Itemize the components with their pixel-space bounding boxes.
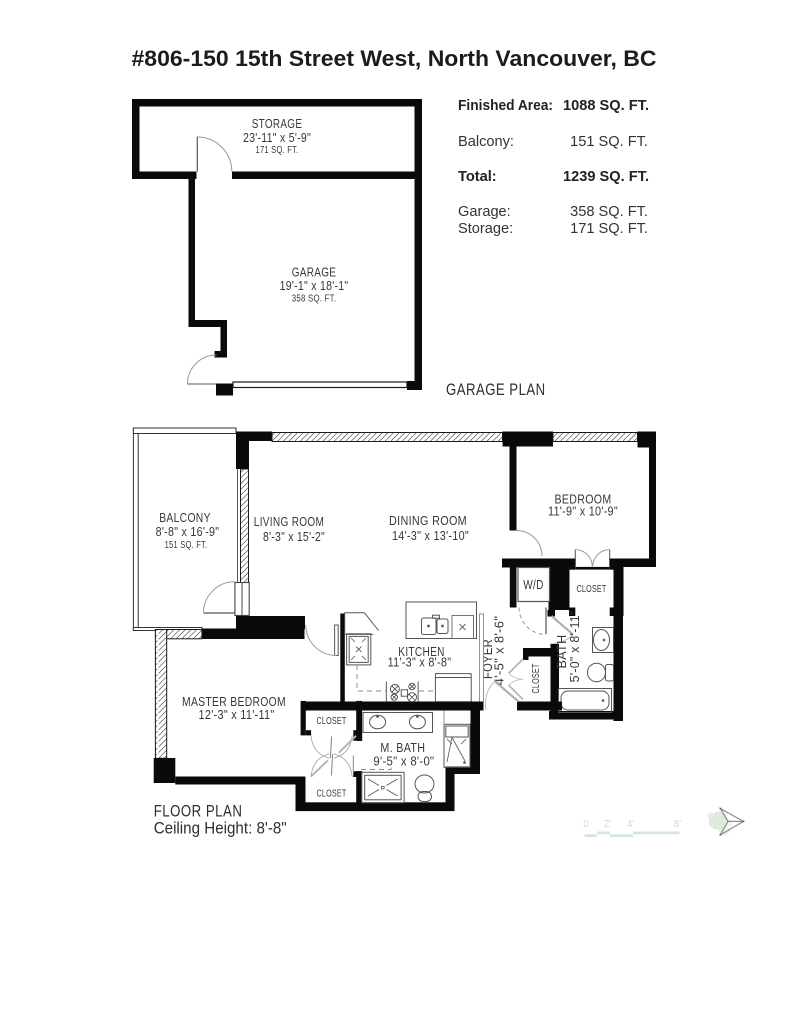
svg-text:2': 2' — [604, 819, 612, 830]
svg-text:9'-5" x 8'-0": 9'-5" x 8'-0" — [373, 755, 434, 769]
svg-text:8'-8" x 16'-9": 8'-8" x 16'-9" — [156, 525, 220, 539]
svg-text:GARAGE PLAN: GARAGE PLAN — [446, 381, 546, 399]
svg-text:GARAGE: GARAGE — [292, 265, 337, 280]
svg-text:#806-150 15th Street West, Nor: #806-150 15th Street West, North Vancouv… — [132, 46, 657, 71]
svg-text:Garage:: Garage: — [458, 204, 511, 220]
svg-text:8'-3" x 15'-2": 8'-3" x 15'-2" — [263, 530, 325, 544]
svg-text:CLOSET: CLOSET — [531, 664, 542, 694]
svg-text:358 SQ. FT.: 358 SQ. FT. — [570, 204, 648, 220]
svg-text:CLOSET: CLOSET — [317, 789, 347, 800]
svg-text:Total:: Total: — [458, 169, 497, 185]
svg-text:BATH: BATH — [554, 635, 569, 669]
svg-text:171 SQ. FT.: 171 SQ. FT. — [256, 145, 299, 156]
svg-text:358 SQ. FT.: 358 SQ. FT. — [292, 294, 337, 305]
svg-text:1088 SQ. FT.: 1088 SQ. FT. — [563, 98, 649, 114]
svg-text:M. BATH: M. BATH — [380, 740, 425, 755]
svg-text:LIVING ROOM: LIVING ROOM — [254, 514, 324, 529]
svg-text:W/D: W/D — [523, 577, 543, 592]
svg-text:MASTER BEDROOM: MASTER BEDROOM — [182, 694, 286, 709]
svg-text:8': 8' — [674, 819, 682, 830]
svg-text:Storage:: Storage: — [458, 221, 513, 237]
svg-text:14'-3" x 13'-10": 14'-3" x 13'-10" — [392, 529, 469, 543]
svg-text:12'-3" x 11'-11": 12'-3" x 11'-11" — [199, 708, 275, 722]
svg-text:171 SQ. FT.: 171 SQ. FT. — [570, 221, 648, 237]
svg-text:151 SQ. FT.: 151 SQ. FT. — [570, 134, 648, 150]
svg-text:Ceiling Height: 8'-8": Ceiling Height: 8'-8" — [154, 819, 287, 838]
svg-text:19'-1" x 18'-1": 19'-1" x 18'-1" — [280, 279, 349, 293]
svg-text:STORAGE: STORAGE — [252, 116, 303, 131]
svg-text:1239 SQ. FT.: 1239 SQ. FT. — [563, 169, 649, 185]
svg-text:0: 0 — [583, 819, 589, 830]
svg-text:4'-5" x 8'-6": 4'-5" x 8'-6" — [493, 616, 507, 686]
svg-text:4': 4' — [627, 819, 635, 830]
svg-text:CLOSET: CLOSET — [577, 584, 607, 595]
svg-text:151 SQ. FT.: 151 SQ. FT. — [165, 540, 208, 551]
svg-text:Balcony:: Balcony: — [458, 134, 514, 150]
svg-text:23'-11" x 5'-9": 23'-11" x 5'-9" — [243, 131, 311, 145]
svg-text:11'-9" x 10'-9": 11'-9" x 10'-9" — [548, 505, 618, 519]
svg-text:Finished Area:: Finished Area: — [458, 98, 553, 114]
svg-text:11'-3" x 8'-8": 11'-3" x 8'-8" — [388, 656, 452, 670]
svg-text:DINING ROOM: DINING ROOM — [389, 513, 467, 528]
svg-text:BALCONY: BALCONY — [159, 510, 211, 525]
svg-text:CLOSET: CLOSET — [317, 716, 347, 727]
svg-text:5'-0" x 8'-11": 5'-0" x 8'-11" — [568, 610, 582, 682]
